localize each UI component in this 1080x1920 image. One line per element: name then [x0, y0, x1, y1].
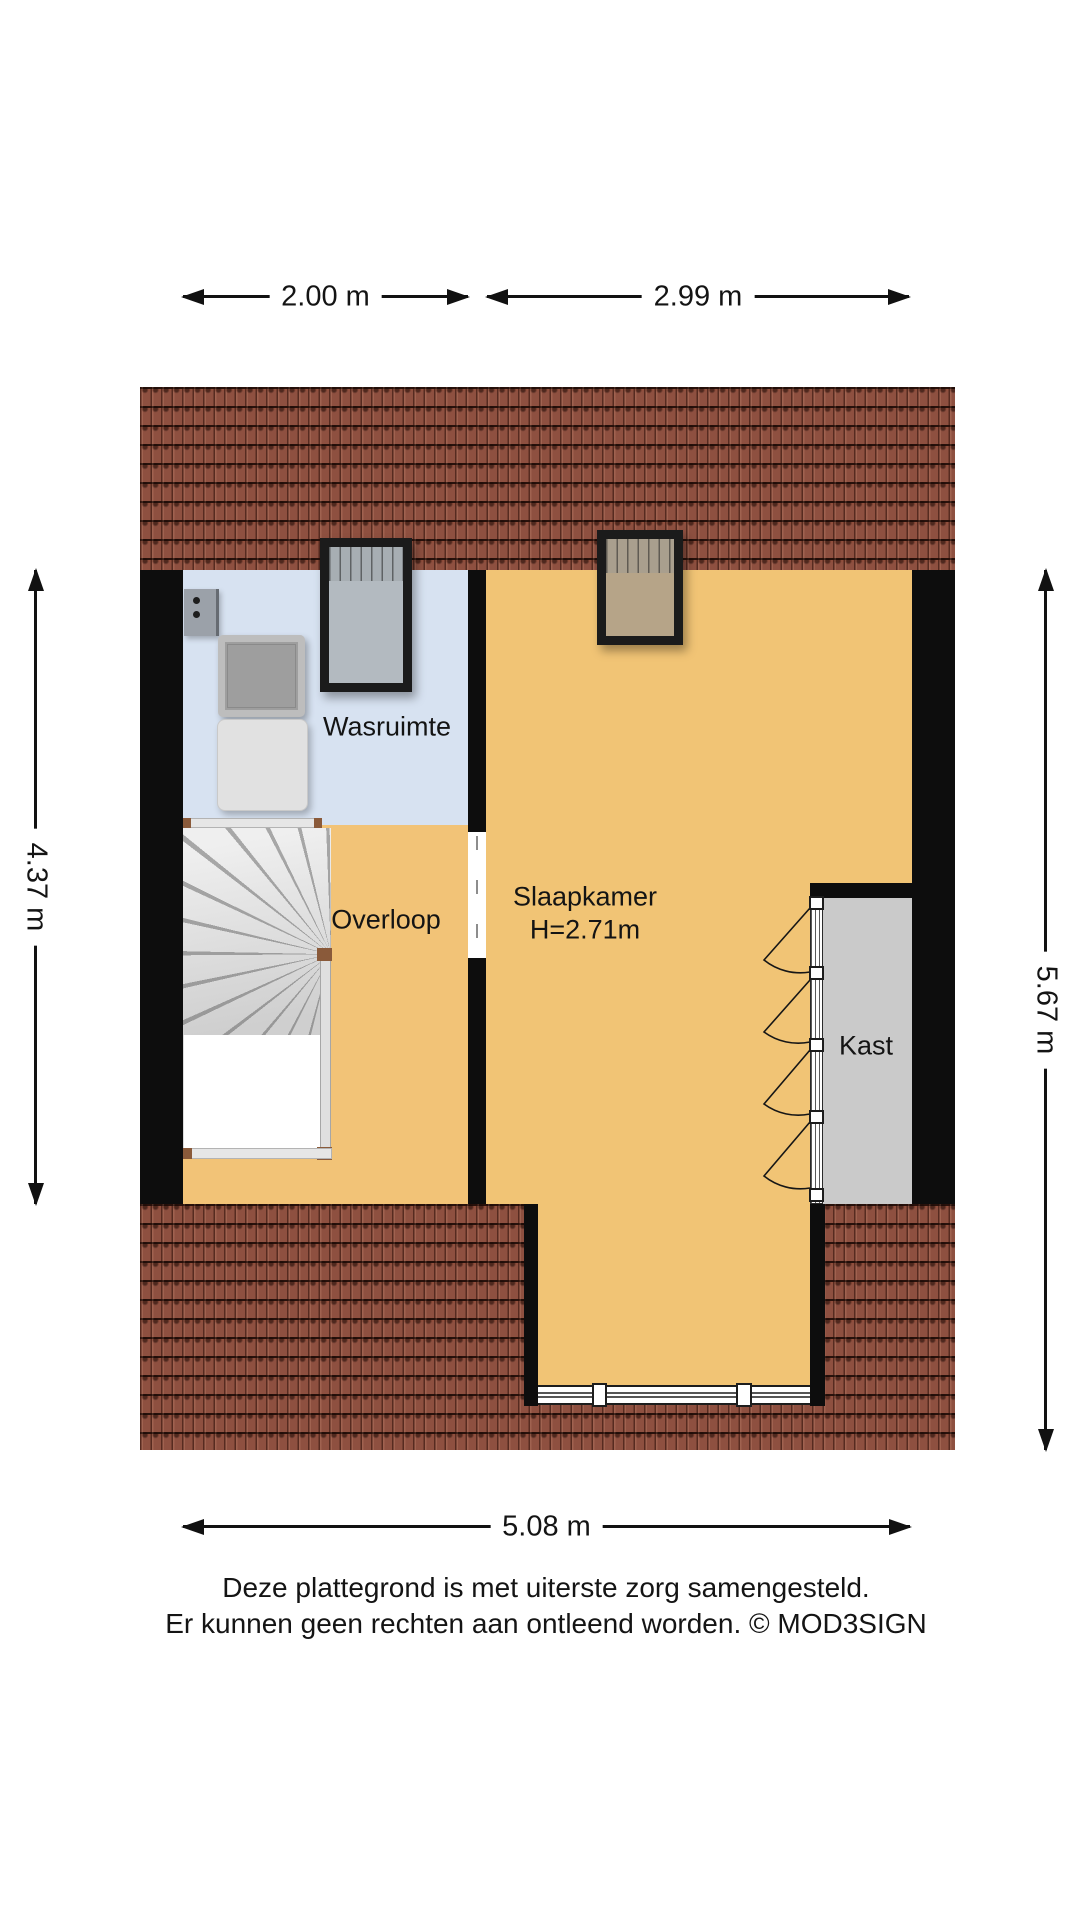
dimension-right: 5.67 m	[1044, 570, 1047, 1450]
dimension-top-right: 2.99 m	[487, 295, 909, 298]
dimension-top-left: 2.00 m	[183, 295, 468, 298]
kast-door-hinge	[809, 896, 824, 910]
disclaimer-line-2: Er kunnen geen rechten aan ontleend word…	[0, 1606, 1080, 1642]
wall-left	[140, 570, 183, 1204]
skylight-slaapkamer	[597, 530, 683, 645]
door-opening	[468, 832, 486, 958]
skylight-glass	[606, 539, 674, 573]
stair-post	[314, 818, 322, 828]
stair-post	[183, 1148, 192, 1159]
label-overloop: Overloop	[331, 905, 441, 936]
kast-door-hinge	[809, 1110, 824, 1124]
dormer-window	[538, 1385, 810, 1405]
skylight-wasruimte	[320, 538, 412, 692]
dimension-left-label: 4.37 m	[19, 829, 52, 946]
dimension-top-right-label: 2.99 m	[642, 280, 755, 313]
disclaimer: Deze plattegrond is met uiterste zorg sa…	[0, 1570, 1080, 1642]
dimension-bottom-label: 5.08 m	[490, 1510, 603, 1543]
stair-newel	[317, 948, 332, 961]
dimension-bottom: 5.08 m	[183, 1525, 910, 1528]
window-mullion	[592, 1383, 607, 1407]
staircase-winders	[183, 828, 331, 1035]
label-slaapkamer: Slaapkamer	[513, 882, 657, 913]
staircase-top-edge	[183, 818, 322, 828]
label-kast: Kast	[839, 1031, 893, 1062]
stair-railing	[320, 952, 331, 1160]
dormer-wall-right	[810, 1204, 825, 1406]
window-mullion	[736, 1383, 752, 1407]
disclaimer-line-1: Deze plattegrond is met uiterste zorg sa…	[0, 1570, 1080, 1606]
skylight-glass	[329, 547, 403, 581]
dryer	[217, 719, 308, 811]
washing-machine	[218, 635, 305, 717]
kast-door-hinge	[809, 1188, 824, 1202]
wall-kast-top	[810, 883, 955, 898]
label-wasruimte: Wasruimte	[323, 712, 451, 743]
boiler-knob	[193, 611, 200, 618]
dimension-right-label: 5.67 m	[1029, 952, 1062, 1069]
dimension-top-left-label: 2.00 m	[269, 280, 382, 313]
stairwell-void	[183, 1035, 321, 1148]
floorplan-page: 2.00 m 2.99 m	[0, 0, 1080, 1920]
staircase-bottom-edge	[183, 1148, 332, 1159]
boiler-unit	[184, 589, 219, 636]
kast-door-hinge	[809, 1038, 824, 1052]
dimension-left: 4.37 m	[34, 570, 37, 1204]
dormer-wall-left	[524, 1204, 538, 1406]
label-slaapkamer-height: H=2.71m	[530, 915, 640, 946]
stair-post	[183, 818, 191, 828]
dormer-floor	[538, 1204, 810, 1385]
kast-door-hinge	[809, 966, 824, 980]
boiler-knob	[193, 597, 200, 604]
